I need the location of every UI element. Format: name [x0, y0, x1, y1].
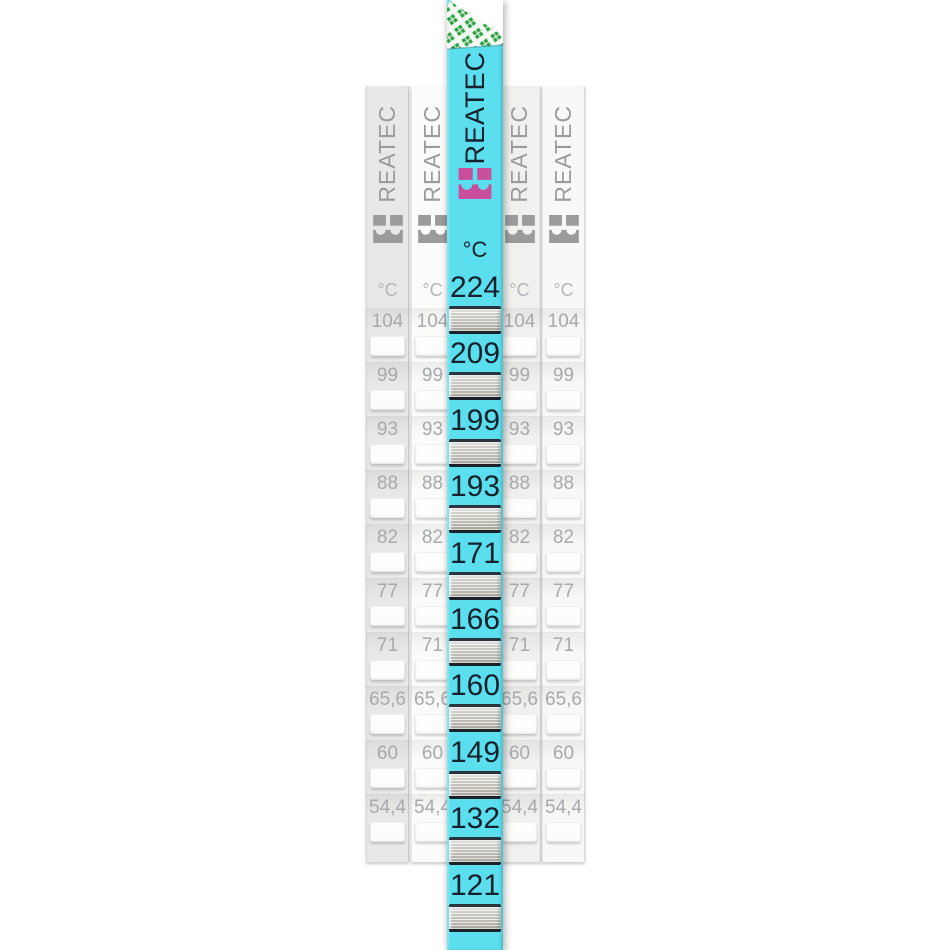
cyan-temp-value: 132	[447, 801, 503, 837]
background-temp-value: 93	[366, 416, 409, 442]
background-temp-value: 104	[542, 308, 585, 334]
product-photo-stage: REATEC°C10499938882777165,66054,4 REATEC…	[0, 0, 950, 950]
background-temp-row: 54,4	[498, 794, 541, 848]
background-indicator-window	[415, 552, 450, 572]
background-indicator-window	[546, 822, 581, 842]
background-indicator-window	[415, 714, 450, 734]
temperature-strip-cyan: REATEC °C 224209199193171166160149132121	[447, 0, 503, 950]
background-temp-value: 60	[498, 740, 541, 766]
cyan-temp-value: 166	[447, 602, 503, 638]
cyan-temp-row: 199	[447, 403, 503, 469]
background-indicator-window	[415, 336, 450, 356]
background-temp-row: 104	[542, 308, 585, 362]
background-indicator-window	[370, 444, 405, 464]
background-temp-row: 71	[498, 632, 541, 686]
cyan-indicator-window	[449, 372, 501, 400]
background-temp-row: 82	[366, 524, 409, 578]
background-temp-row: 60	[366, 740, 409, 794]
background-temp-value: 60	[366, 740, 409, 766]
cyan-temp-value: 160	[447, 668, 503, 704]
background-temp-row: 93	[366, 416, 409, 470]
background-indicator-window	[370, 660, 405, 680]
cyan-temp-row: 224	[447, 270, 503, 336]
unit-label: °C	[366, 276, 409, 304]
cyan-temp-row: 171	[447, 536, 503, 602]
background-temp-row: 54,4	[366, 794, 409, 848]
background-temp-rows: 10499938882777165,66054,4	[542, 308, 585, 848]
background-temp-row: 88	[498, 470, 541, 524]
background-temp-row: 54,4	[542, 794, 585, 848]
cyan-temp-value: 171	[447, 536, 503, 572]
reatec-logo-icon	[418, 215, 448, 243]
background-temp-value: 88	[542, 470, 585, 496]
background-temp-value: 54,4	[498, 794, 541, 820]
background-temp-value: 99	[366, 362, 409, 388]
background-temp-row: 60	[498, 740, 541, 794]
background-indicator-window	[502, 336, 537, 356]
background-indicator-window	[370, 336, 405, 356]
cyan-temp-value: 121	[447, 868, 503, 904]
reatec-logo-icon-slot	[498, 212, 541, 246]
background-indicator-window	[415, 822, 450, 842]
brand-label: REATEC	[460, 51, 491, 165]
cyan-indicator-window	[449, 505, 501, 533]
cyan-temp-row: 160	[447, 668, 503, 734]
background-temp-row: 99	[498, 362, 541, 416]
reatec-logo-icon	[373, 215, 403, 243]
background-temp-row: 104	[366, 308, 409, 362]
background-indicator-window	[546, 768, 581, 788]
background-indicator-window	[370, 552, 405, 572]
brand-text-vertical: REATEC	[498, 98, 541, 210]
brand-label: REATEC	[550, 105, 577, 203]
cyan-temp-value: 199	[447, 403, 503, 439]
reatec-logo-icon	[505, 215, 535, 243]
reatec-logo-icon-slot	[542, 212, 585, 246]
background-temp-row: 93	[498, 416, 541, 470]
brand-label: REATEC	[419, 105, 446, 203]
background-indicator-window	[546, 552, 581, 572]
background-indicator-window	[370, 390, 405, 410]
temperature-strip-background-1: REATEC°C10499938882777165,66054,4	[366, 86, 409, 862]
cyan-indicator-window	[449, 638, 501, 666]
background-temp-value: 77	[498, 578, 541, 604]
background-temp-value: 54,4	[366, 794, 409, 820]
background-temp-value: 82	[366, 524, 409, 550]
background-temp-row: 82	[542, 524, 585, 578]
background-indicator-window	[415, 444, 450, 464]
background-temp-value: 82	[542, 524, 585, 550]
background-temp-row: 104	[498, 308, 541, 362]
background-temp-row: 99	[366, 362, 409, 416]
background-indicator-window	[370, 498, 405, 518]
background-indicator-window	[415, 498, 450, 518]
background-temp-row: 82	[498, 524, 541, 578]
background-temp-value: 104	[498, 308, 541, 334]
background-temp-value: 82	[498, 524, 541, 550]
cyan-temp-row: 193	[447, 469, 503, 535]
cyan-indicator-window	[449, 704, 501, 732]
background-temp-value: 60	[542, 740, 585, 766]
cyan-temp-row: 209	[447, 336, 503, 402]
cyan-temp-rows: 224209199193171166160149132121	[447, 270, 503, 934]
background-indicator-window	[415, 606, 450, 626]
cyan-temp-value: 149	[447, 735, 503, 771]
reatec-logo-icon-slot	[447, 166, 503, 200]
brand-text-vertical: REATEC	[542, 98, 585, 210]
background-temp-value: 71	[542, 632, 585, 658]
background-indicator-window	[370, 822, 405, 842]
cyan-indicator-window	[449, 572, 501, 600]
background-temp-value: 65,6	[498, 686, 541, 712]
peeled-liner-corner-icon	[447, 0, 503, 50]
background-indicator-window	[502, 390, 537, 410]
background-temp-row: 88	[366, 470, 409, 524]
background-temp-value: 99	[542, 362, 585, 388]
background-indicator-window	[546, 498, 581, 518]
background-indicator-window	[415, 390, 450, 410]
background-temp-row: 77	[366, 578, 409, 632]
background-temp-row: 65,6	[498, 686, 541, 740]
background-indicator-window	[502, 714, 537, 734]
background-temp-value: 54,4	[542, 794, 585, 820]
background-indicator-window	[546, 606, 581, 626]
background-temp-row: 60	[542, 740, 585, 794]
background-temp-row: 99	[542, 362, 585, 416]
unit-label: °C	[447, 234, 503, 266]
cyan-temp-value: 224	[447, 270, 503, 306]
cyan-temp-row: 149	[447, 735, 503, 801]
background-temp-value: 77	[366, 578, 409, 604]
brand-text-vertical: REATEC	[447, 52, 503, 164]
cyan-temp-row: 166	[447, 602, 503, 668]
background-indicator-window	[546, 336, 581, 356]
cyan-temp-value: 209	[447, 336, 503, 372]
cyan-indicator-window	[449, 837, 501, 865]
background-temp-row: 65,6	[542, 686, 585, 740]
temperature-strip-background-4: REATEC°C10499938882777165,66054,4	[542, 86, 585, 862]
background-temp-row: 65,6	[366, 686, 409, 740]
background-indicator-window	[370, 714, 405, 734]
background-indicator-window	[502, 444, 537, 464]
background-temp-value: 99	[498, 362, 541, 388]
background-indicator-window	[502, 660, 537, 680]
background-indicator-window	[415, 768, 450, 788]
cyan-indicator-window	[449, 439, 501, 467]
cyan-temp-row: 132	[447, 801, 503, 867]
cyan-temp-value: 193	[447, 469, 503, 505]
background-temp-value: 71	[366, 632, 409, 658]
background-temp-row: 71	[542, 632, 585, 686]
background-indicator-window	[502, 822, 537, 842]
reatec-logo-icon-slot	[366, 212, 409, 246]
background-indicator-window	[415, 660, 450, 680]
background-temp-value: 88	[366, 470, 409, 496]
cyan-indicator-window	[449, 306, 501, 334]
cyan-indicator-window	[449, 904, 501, 932]
background-indicator-window	[370, 606, 405, 626]
background-temp-value: 93	[542, 416, 585, 442]
background-indicator-window	[546, 660, 581, 680]
background-temp-row: 77	[542, 578, 585, 632]
reatec-logo-icon	[549, 215, 579, 243]
background-temp-value: 104	[366, 308, 409, 334]
background-temp-value: 65,6	[542, 686, 585, 712]
background-indicator-window	[502, 606, 537, 626]
background-temp-row: 88	[542, 470, 585, 524]
background-temp-value: 71	[498, 632, 541, 658]
background-indicator-window	[502, 498, 537, 518]
background-temp-row: 77	[498, 578, 541, 632]
temperature-strip-background-3: REATEC°C10499938882777165,66054,4	[498, 86, 541, 862]
background-temp-row: 93	[542, 416, 585, 470]
background-indicator-window	[546, 390, 581, 410]
reatec-logo-icon	[458, 168, 492, 199]
brand-label: REATEC	[374, 105, 401, 203]
background-temp-value: 65,6	[366, 686, 409, 712]
background-temp-value: 88	[498, 470, 541, 496]
unit-label: °C	[498, 276, 541, 304]
background-indicator-window	[370, 768, 405, 788]
background-temp-value: 77	[542, 578, 585, 604]
background-indicator-window	[502, 768, 537, 788]
background-indicator-window	[502, 552, 537, 572]
unit-label: °C	[542, 276, 585, 304]
background-indicator-window	[546, 714, 581, 734]
background-temp-rows: 10499938882777165,66054,4	[498, 308, 541, 848]
background-temp-row: 71	[366, 632, 409, 686]
cyan-indicator-window	[449, 771, 501, 799]
background-temp-value: 93	[498, 416, 541, 442]
cyan-temp-row: 121	[447, 868, 503, 934]
background-temp-rows: 10499938882777165,66054,4	[366, 308, 409, 848]
background-indicator-window	[546, 444, 581, 464]
brand-text-vertical: REATEC	[366, 98, 409, 210]
brand-label: REATEC	[506, 105, 533, 203]
